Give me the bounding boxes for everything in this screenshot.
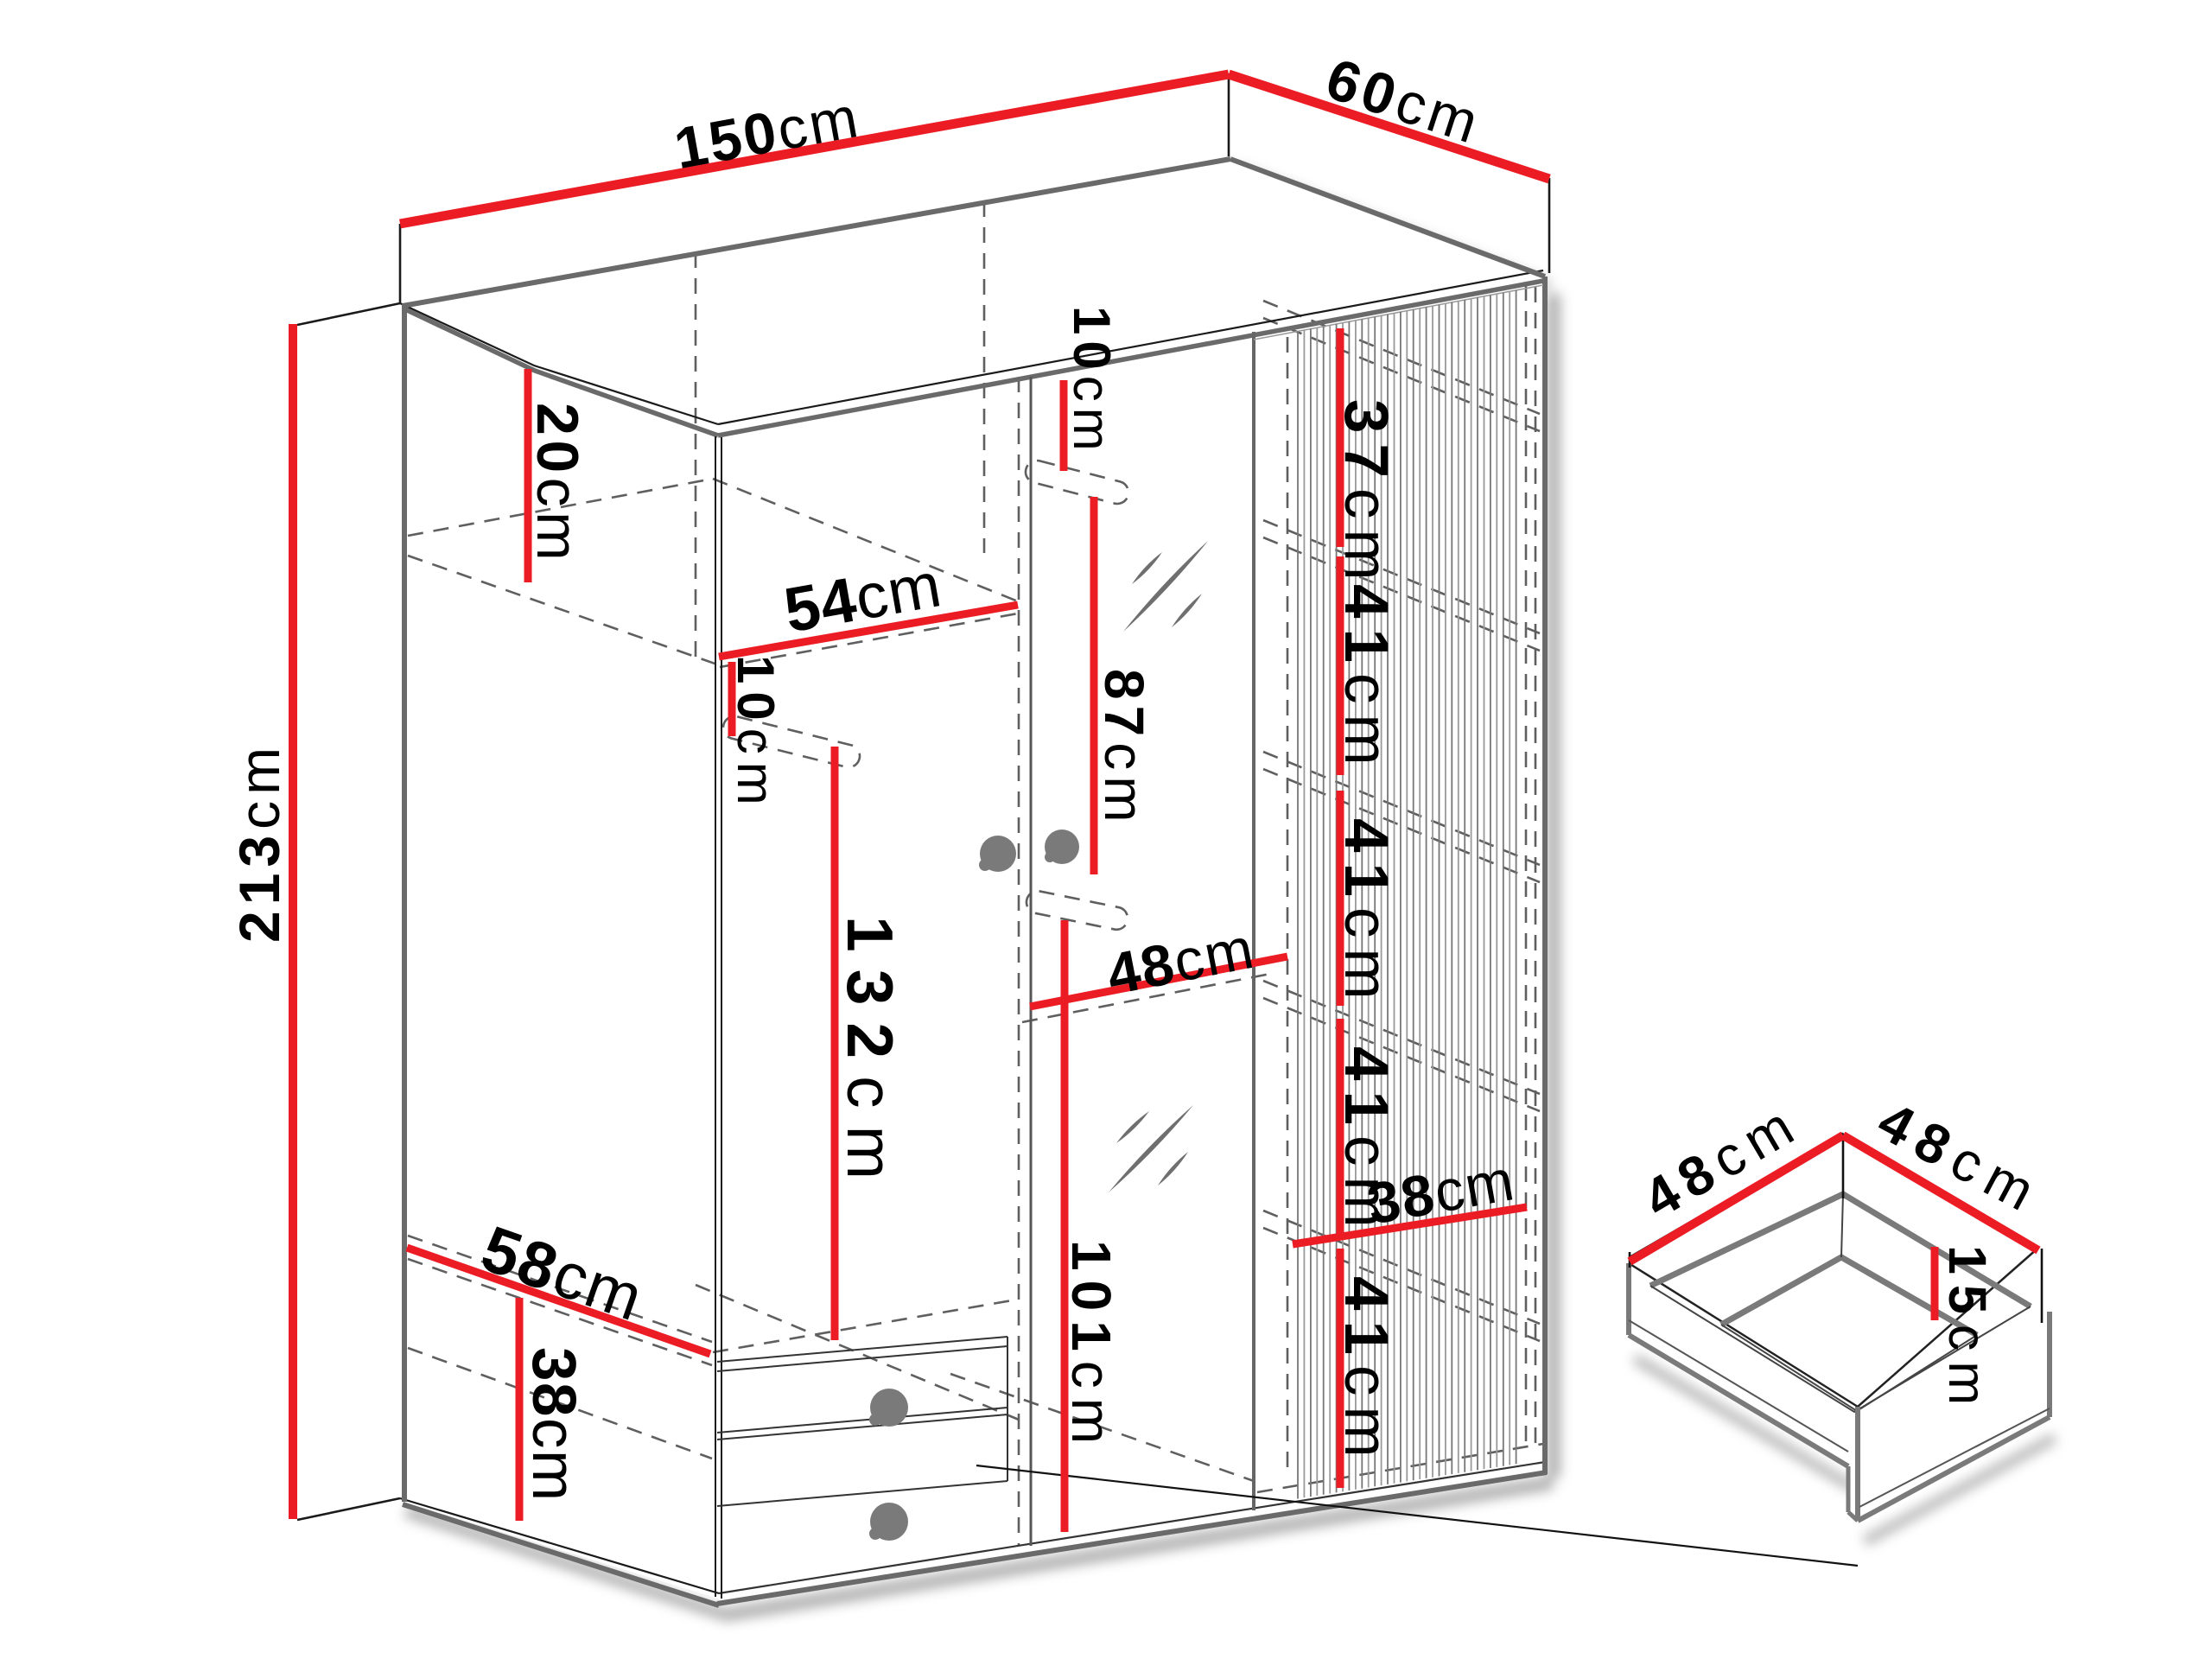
svg-text:213cm: 213cm	[227, 741, 291, 943]
svg-text:41cm: 41cm	[1332, 818, 1400, 1010]
svg-text:20cm: 20cm	[524, 403, 590, 565]
svg-text:15cm: 15cm	[1938, 1245, 1997, 1415]
svg-text:38cm: 38cm	[519, 1347, 588, 1503]
svg-text:10cm: 10cm	[727, 655, 785, 813]
svg-text:37cm: 37cm	[1332, 399, 1400, 591]
svg-text:41cm: 41cm	[1332, 584, 1400, 776]
svg-text:101cm: 101cm	[1060, 1240, 1122, 1453]
svg-text:87cm: 87cm	[1093, 669, 1155, 829]
svg-text:132cm: 132cm	[834, 916, 906, 1197]
svg-text:41cm: 41cm	[1332, 1276, 1400, 1468]
svg-text:10cm: 10cm	[1063, 306, 1121, 457]
